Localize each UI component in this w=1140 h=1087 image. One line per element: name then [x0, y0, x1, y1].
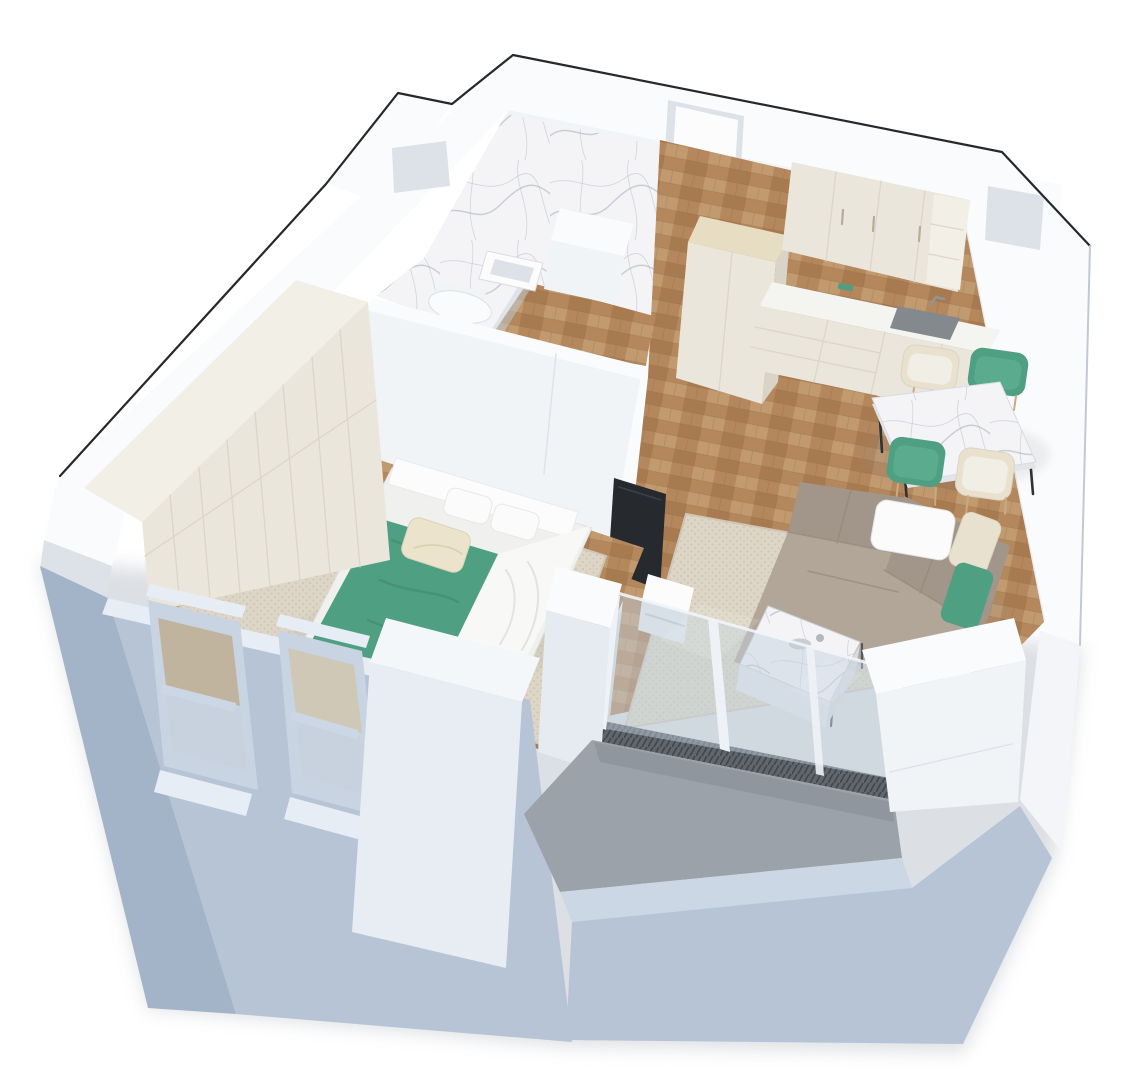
coffee-table-cup [816, 634, 824, 642]
vent-shaft-opening [392, 141, 450, 193]
dining-chair-white-1 [899, 343, 960, 392]
corner-shaft-opening [985, 186, 1044, 250]
floorplan-3d-render [0, 0, 1140, 1087]
apartment-svg [0, 0, 1140, 1087]
pillar-bedroom-face [352, 662, 522, 968]
dining-chair-teal-2 [885, 435, 947, 488]
dining-chair-cream-1 [954, 446, 1016, 501]
vent-shaft [326, 93, 452, 202]
